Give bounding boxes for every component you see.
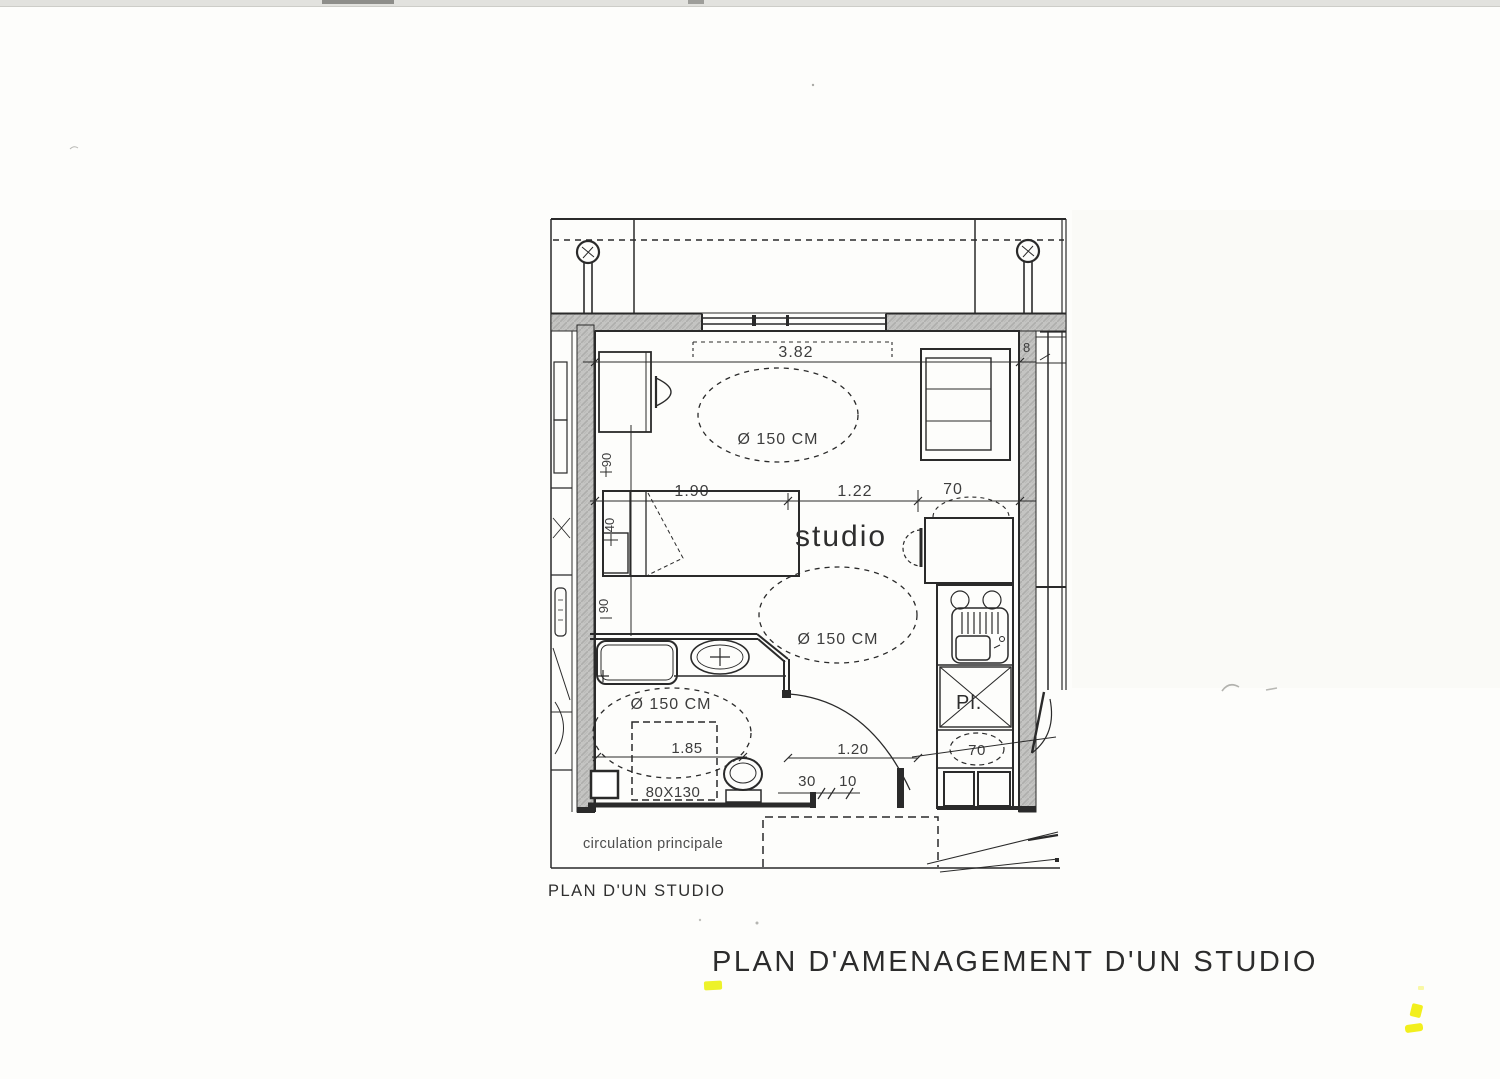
- wall-stub: [897, 768, 904, 808]
- facade-wall-left: [551, 314, 702, 331]
- dim-120-label: 1.20: [837, 741, 868, 758]
- scan-speck: [699, 919, 701, 921]
- entrance-area: circulation principale: [551, 817, 1060, 872]
- main-title: PLAN D'AMENAGEMENT D'UN STUDIO: [712, 946, 1318, 978]
- wall-dim-90-upper: 90: [599, 453, 614, 467]
- base-cabinet: [944, 772, 974, 806]
- burner: [983, 591, 1001, 609]
- window: [702, 314, 886, 331]
- scan-top-dark-segment: [688, 0, 704, 4]
- wardrobe-outline: [921, 349, 1010, 460]
- dim-cross-tick: [600, 467, 612, 477]
- door-swing-arc: [903, 530, 921, 566]
- bed: 40: [602, 491, 799, 576]
- turning-circle-label: Ø 150 CM: [738, 431, 819, 448]
- scan-tint-region: [1072, 210, 1500, 688]
- bathroom: Ø 150 CM 1.85 80X130: [590, 634, 791, 802]
- wardrobe: [921, 349, 1010, 460]
- dim-70-label: 70: [943, 481, 963, 498]
- dim-line-middle: 1.90 1.22 70: [590, 481, 1036, 512]
- left-wall-cap: [577, 807, 595, 813]
- highlight-mark: [1405, 1023, 1424, 1033]
- wall-dim-90-lower: 90: [596, 599, 611, 613]
- scanned-floorplan-page: 8 3.82 Ø 150 CM: [0, 0, 1500, 1079]
- door-swing-arc-dashed: [933, 497, 1009, 517]
- kitchen-sink: [956, 636, 990, 660]
- dim-cross-tick: [604, 534, 618, 546]
- corridor-fixture-detail: [558, 600, 563, 620]
- desk-outline: [599, 352, 651, 432]
- dim-30-label: 30: [798, 773, 816, 790]
- corridor-x-mark: [553, 518, 570, 538]
- bath-wall-diagonal: [757, 634, 788, 662]
- scan-speck: [70, 147, 78, 149]
- dim-10-label: 10: [839, 773, 857, 790]
- bed-side-unit: [603, 533, 628, 573]
- wardrobe-inner: [926, 358, 991, 450]
- highlighter-marks: [704, 981, 1424, 1034]
- toilet-tank: [726, 790, 761, 802]
- door-swing-line: [940, 859, 1058, 872]
- shower-size-label: 80X130: [646, 784, 701, 801]
- turning-circle-dashed: [759, 567, 917, 663]
- floor-plan-drawing: 8 3.82 Ø 150 CM: [0, 0, 1500, 1079]
- corridor-fixture: [554, 420, 567, 473]
- turning-circle-upper: Ø 150 CM: [698, 368, 858, 462]
- bed-fold-lines: [648, 493, 683, 575]
- door-clear-70-label: 70: [968, 742, 986, 759]
- dim-122-label: 1.22: [837, 483, 872, 500]
- closet-label: Pl.: [956, 692, 982, 714]
- desk: [599, 352, 671, 636]
- corridor-door-arc: [555, 702, 564, 754]
- corridor-fixture-rounded: [555, 588, 566, 636]
- kitchen-nook-door: [903, 528, 921, 567]
- bed-side-40-label: 40: [602, 518, 617, 532]
- bed-outline: [603, 491, 799, 576]
- highlight-mark: [1418, 986, 1424, 990]
- corridor-diagonal: [553, 648, 570, 700]
- washbasin-cross: [710, 648, 730, 666]
- highlight-mark: [1409, 1003, 1423, 1018]
- dim-382-label: 3.82: [778, 344, 813, 361]
- facade-wall-right: [886, 314, 1066, 331]
- turning-circle-label: Ø 150 CM: [631, 696, 712, 713]
- scan-artifacts: [0, 0, 1500, 925]
- burner: [951, 591, 969, 609]
- bathtub-outline: [597, 641, 677, 684]
- circulation-label: circulation principale: [583, 836, 723, 852]
- door-swing-endpoint: [1055, 858, 1059, 862]
- turning-circle-middle: Ø 150 CM: [759, 567, 917, 663]
- door-frame-block: [591, 771, 618, 798]
- scan-speck: [756, 922, 759, 925]
- highlight-mark: [704, 981, 722, 991]
- wall-mark-8: 8: [1023, 340, 1030, 355]
- balcony-post-left: [577, 241, 599, 317]
- turning-circle-label: Ø 150 CM: [798, 631, 879, 648]
- bathtub-inner: [601, 645, 673, 680]
- scan-speck: [812, 84, 814, 86]
- drainer-grill: [962, 612, 998, 634]
- scan-top-band: [0, 0, 1500, 6]
- entrance-dashed-rect: [763, 817, 938, 867]
- left-corridor-fixtures: [551, 331, 572, 812]
- plan-caption: PLAN D'UN STUDIO: [548, 882, 726, 900]
- faucet-dot: [1000, 637, 1005, 642]
- left-wall: [577, 325, 594, 812]
- room-label-studio: studio: [795, 520, 887, 553]
- balcony-post-right: [1017, 240, 1039, 317]
- closet-pl: Pl.: [940, 667, 1011, 727]
- corridor-fixture: [554, 362, 567, 420]
- faucet-mark: [994, 645, 1000, 648]
- fridge: [925, 518, 1013, 583]
- chair-seat-arc: [656, 378, 671, 406]
- dim-185-label: 1.85: [671, 740, 702, 757]
- toilet: [724, 758, 762, 802]
- scan-top-dark-segment: [322, 0, 394, 4]
- base-cabinet: [978, 772, 1010, 806]
- door-swing-line: [927, 832, 1058, 864]
- toilet-bowl-inner: [730, 763, 756, 783]
- wall-stub: [810, 792, 816, 808]
- pen-mark-dash: [1266, 688, 1277, 690]
